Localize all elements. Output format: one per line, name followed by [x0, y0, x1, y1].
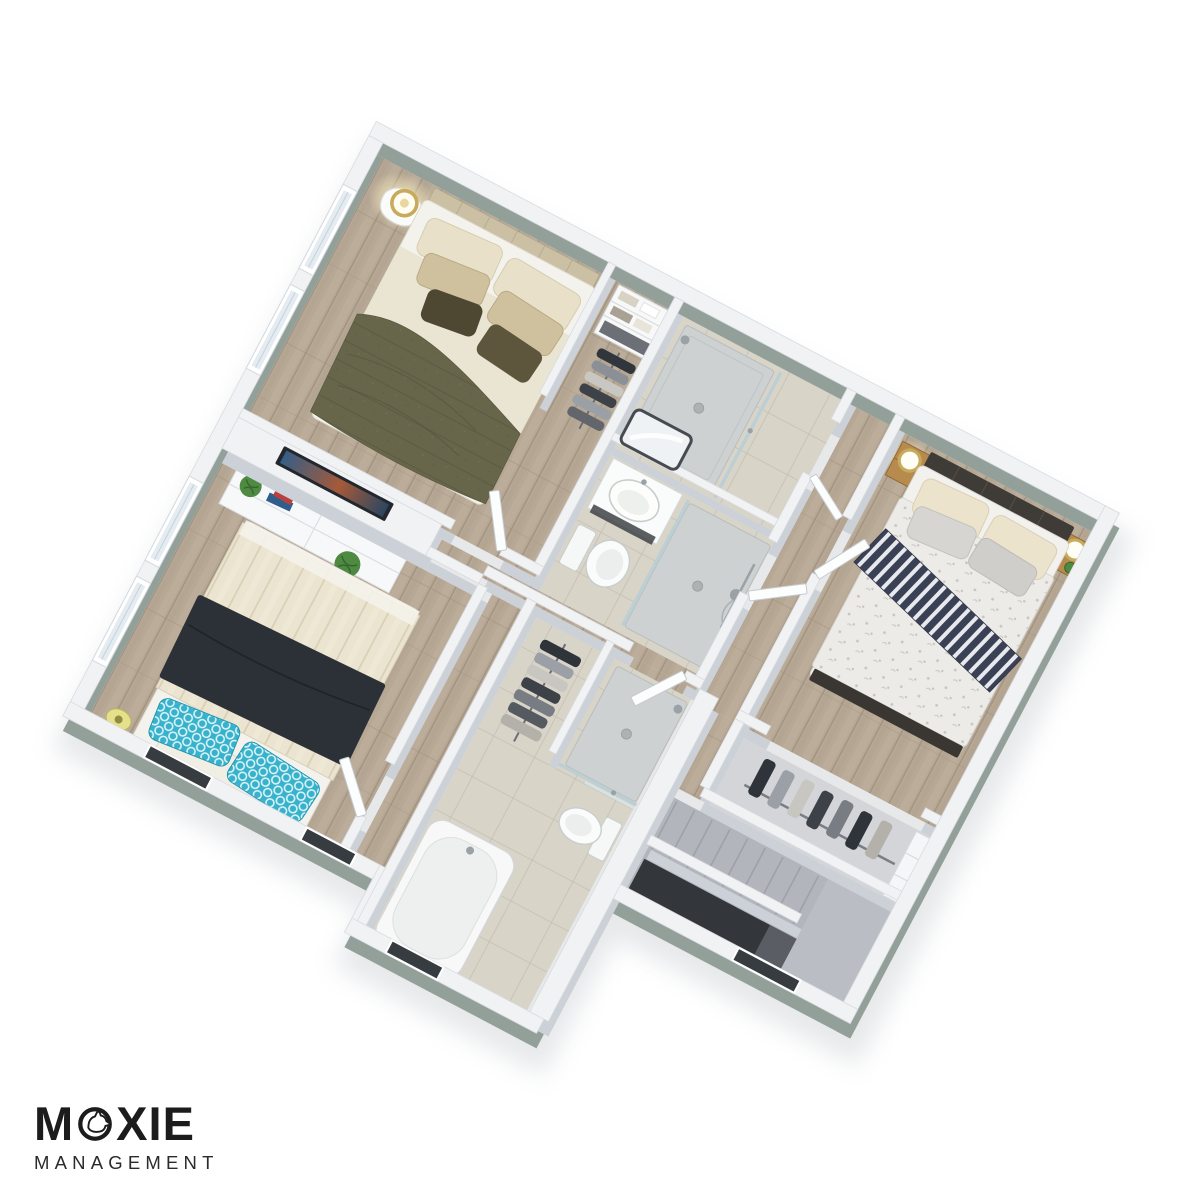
floor-plan-render [0, 0, 1200, 1200]
page: M XIE MANAGEMENT [0, 0, 1200, 1200]
dog-in-circle-icon [76, 1105, 114, 1143]
brand-text-left: M [34, 1100, 74, 1147]
brand-text-right: XIE [116, 1100, 195, 1147]
brand-wordmark: M XIE [34, 1100, 219, 1147]
logo: M XIE MANAGEMENT [34, 1100, 219, 1174]
brand-subtitle: MANAGEMENT [34, 1152, 219, 1174]
